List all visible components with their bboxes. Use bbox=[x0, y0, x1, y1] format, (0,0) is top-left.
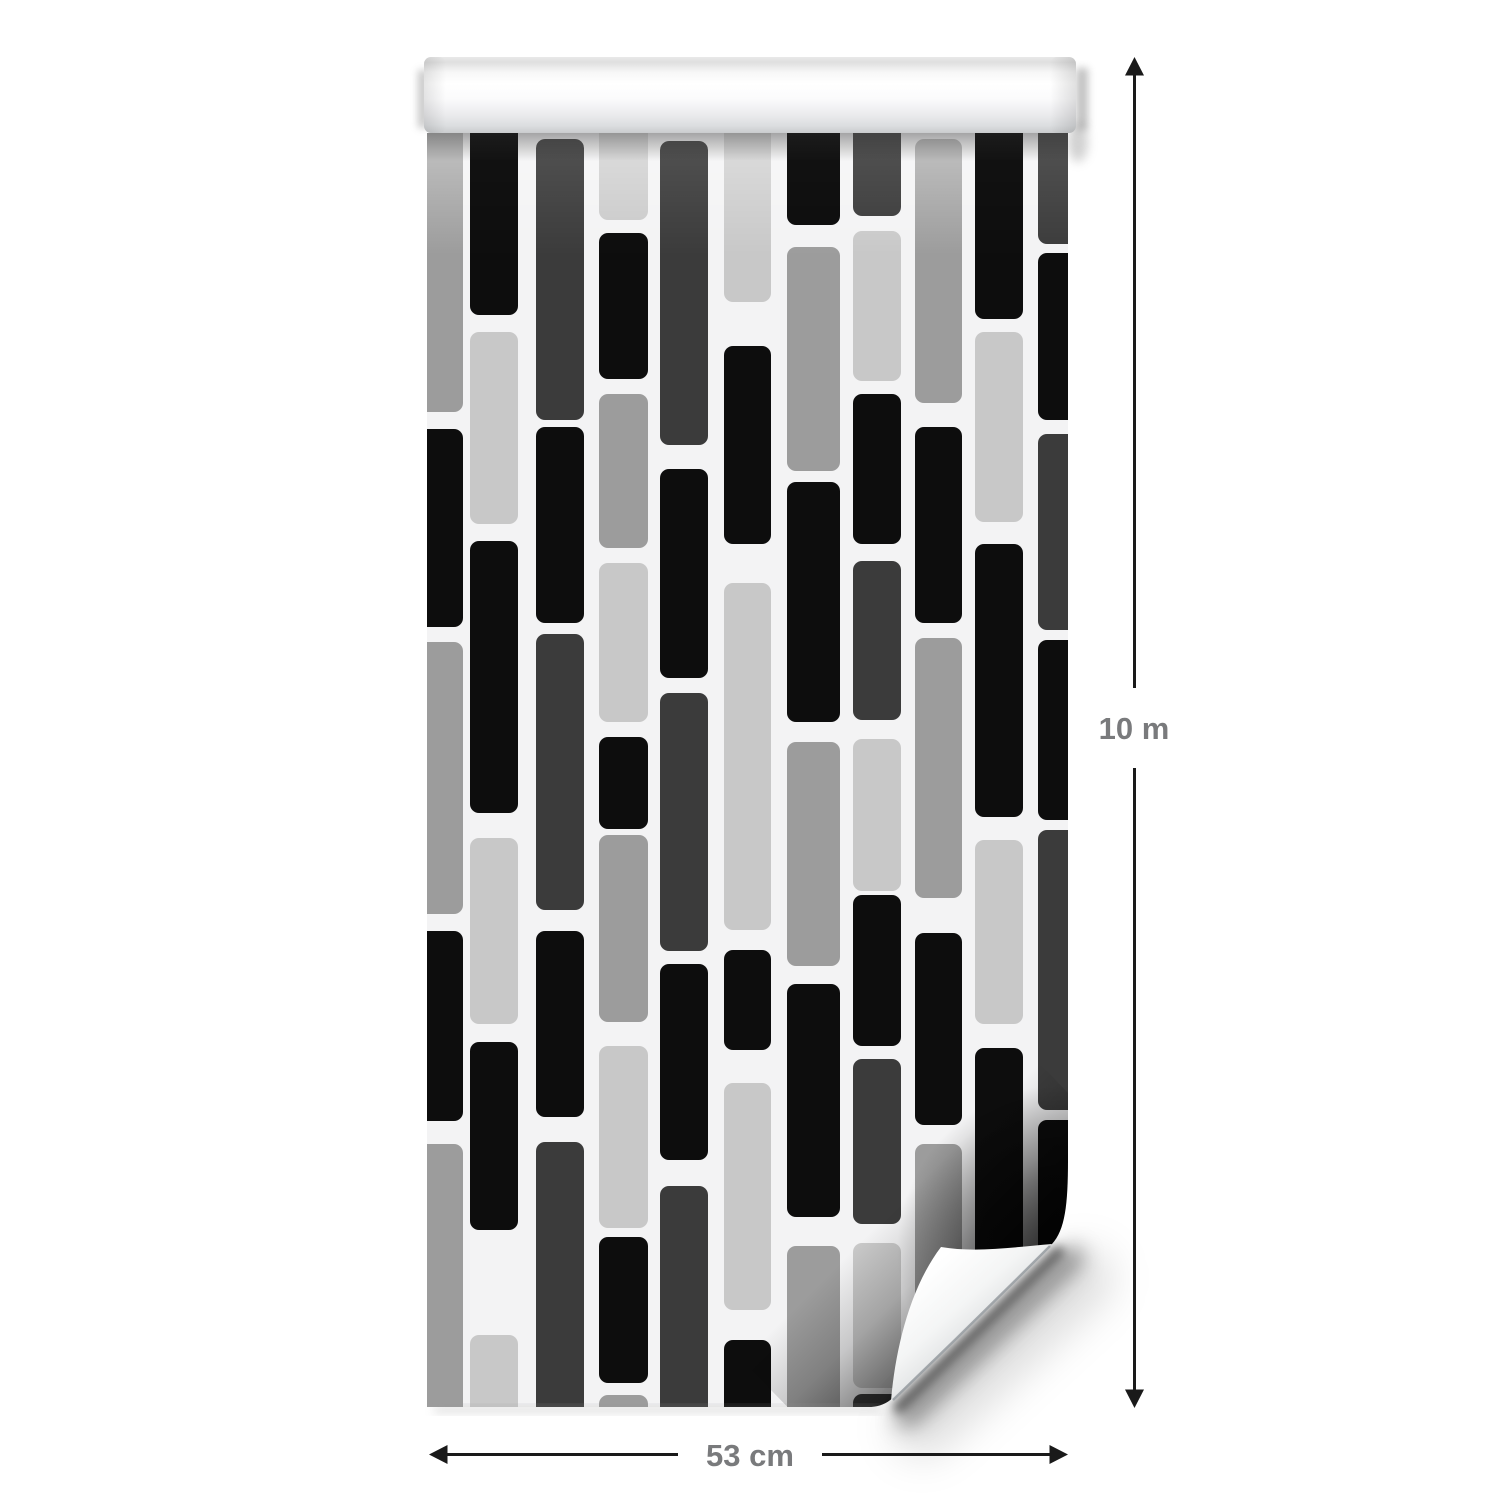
svg-text:10 m: 10 m bbox=[1099, 711, 1170, 746]
svg-text:53 cm: 53 cm bbox=[706, 1438, 794, 1473]
